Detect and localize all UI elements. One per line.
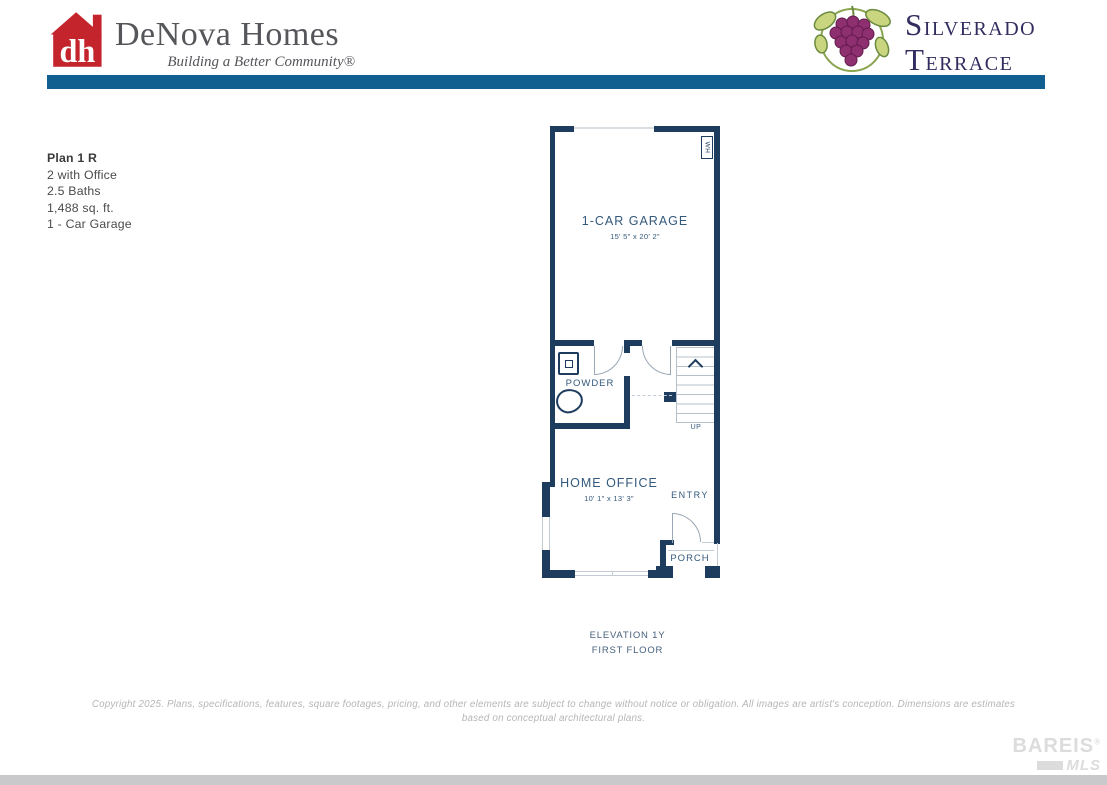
flyer-page: dh DeNova Homes Building a Better Commun…: [0, 0, 1107, 785]
wall-segment: [550, 126, 574, 132]
up-label: UP: [678, 424, 714, 431]
office-window: [575, 571, 648, 576]
entry-label: ENTRY: [666, 490, 714, 500]
silverado-terrace-logo: SILVERADO TERRACE: [806, 2, 1051, 74]
denova-house-icon: dh: [47, 6, 109, 68]
office-name: HOME OFFICE: [558, 476, 660, 491]
office-dims: 10' 1" x 13' 3": [558, 494, 660, 503]
porch-edge-line: [668, 550, 714, 551]
elevation-caption: ELEVATION 1Y: [510, 630, 745, 641]
porch-edge-line: [717, 543, 718, 566]
header-accent-bar: [47, 75, 1045, 89]
denova-homes-logo: dh DeNova Homes Building a Better Commun…: [47, 4, 357, 74]
bareis-mls-watermark: BAREIS® MLS: [991, 735, 1101, 774]
garage-name: 1-CAR GARAGE: [580, 214, 690, 229]
wall-segment: [654, 126, 720, 132]
plan-title: Plan 1 R: [47, 151, 247, 168]
wall-segment: [714, 126, 720, 544]
toilet-fixture: [553, 386, 585, 416]
wall-segment: [550, 340, 594, 346]
soffit-dashed-line: [632, 395, 672, 396]
wall-segment: [542, 570, 575, 578]
wall-segment: [656, 566, 673, 578]
garage-label: 1-CAR GARAGE 15' 5" x 20' 2": [580, 214, 690, 241]
hall-door-leaf: [670, 346, 671, 375]
hall-door-arc: [642, 346, 671, 375]
bottom-gray-bar: [0, 775, 1107, 785]
garage-door: [574, 127, 654, 129]
plan-caption: ELEVATION 1Y FIRST FLOOR: [510, 630, 745, 660]
mls-wordmark: MLS: [991, 757, 1101, 774]
mls-bar: [1037, 761, 1063, 770]
wall-segment: [672, 340, 720, 346]
grape-cluster-icon: [806, 2, 900, 74]
sink-basin: [565, 360, 573, 368]
powder-door-arc: [594, 346, 623, 375]
water-heater: WH: [701, 136, 713, 159]
sink-fixture: [558, 352, 579, 375]
denova-monogram: dh: [59, 33, 95, 68]
silverado-line: SILVERADO: [905, 10, 1036, 45]
floor-plan: UP WH 1-CAR GARAGE 15' 5" x 20' 2" POWDE…: [550, 126, 720, 578]
copyright-disclaimer: Copyright 2025. Plans, specifications, f…: [84, 698, 1024, 726]
wall-segment: [542, 482, 550, 517]
porch-label: PORCH: [666, 553, 714, 564]
porch-edge-line: [702, 542, 714, 543]
wall-segment: [542, 550, 550, 570]
wall-segment: [705, 566, 720, 578]
powder-door-leaf: [594, 346, 595, 375]
bareis-wordmark: BAREIS®: [991, 735, 1101, 758]
plan-detail: 1,488 sq. ft.: [47, 201, 247, 218]
garage-dims: 15' 5" x 20' 2": [580, 232, 690, 241]
denova-tagline: Building a Better Community®: [115, 54, 355, 71]
wall-segment: [550, 126, 555, 487]
entry-door-leaf: [672, 513, 673, 543]
denova-name: DeNova Homes: [115, 16, 357, 54]
wall-segment: [624, 345, 630, 353]
bay-window: [542, 517, 550, 550]
office-label: HOME OFFICE 10' 1" x 13' 3": [558, 476, 660, 503]
silverado-terrace-wordmark: SILVERADO TERRACE: [905, 10, 1036, 80]
plan-info: Plan 1 R 2 with Office 2.5 Baths 1,488 s…: [47, 151, 247, 234]
floor-caption: FIRST FLOOR: [510, 645, 745, 656]
plan-detail: 1 - Car Garage: [47, 217, 247, 234]
registered-mark: ®: [1094, 737, 1101, 746]
plan-detail: 2.5 Baths: [47, 184, 247, 201]
powder-label: POWDER: [553, 378, 627, 389]
entry-door-arc: [672, 513, 701, 542]
window-mullion: [612, 572, 613, 575]
water-heater-label: WH: [704, 142, 711, 154]
wall-segment: [550, 423, 630, 429]
plan-detail: 2 with Office: [47, 168, 247, 185]
